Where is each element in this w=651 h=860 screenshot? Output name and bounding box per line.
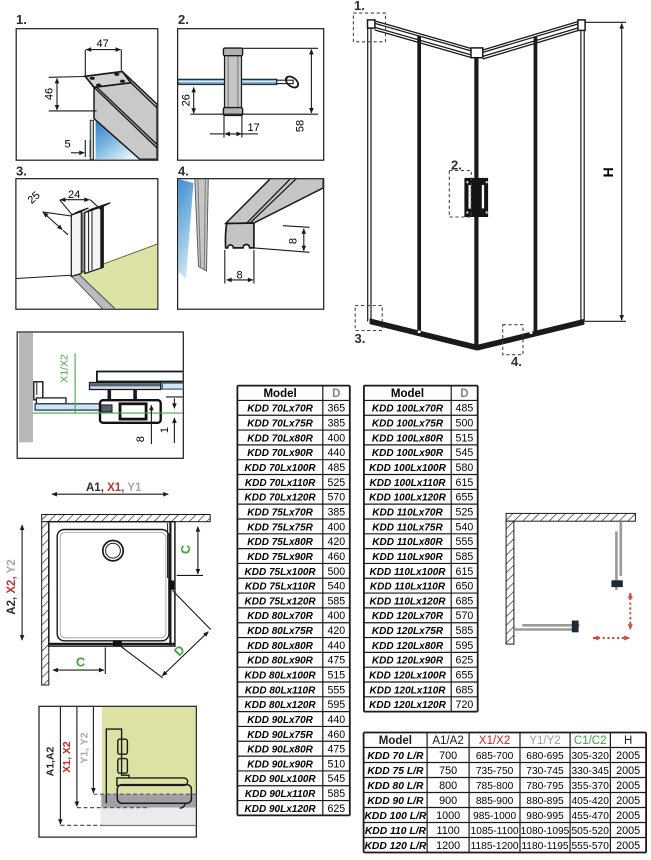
svg-text:KDD 110Lx100R: KDD 110Lx100R [370, 567, 447, 578]
svg-text:KDD 70Lx120R: KDD 70Lx120R [245, 493, 317, 504]
svg-text:570: 570 [327, 492, 345, 504]
svg-text:KDD 75Lx100R: KDD 75Lx100R [245, 567, 317, 578]
svg-text:Model: Model [379, 735, 412, 747]
svg-text:KDD 120Lx120R: KDD 120Lx120R [369, 700, 446, 711]
svg-text:KDD 75Lx120R: KDD 75Lx120R [245, 596, 317, 607]
svg-text:730-745: 730-745 [526, 766, 564, 777]
svg-text:58: 58 [295, 120, 307, 132]
svg-text:985-1000: 985-1000 [473, 811, 516, 822]
svg-text:KDD 120Lx90R: KDD 120Lx90R [372, 656, 444, 667]
svg-text:KDD 120Lx75R: KDD 120Lx75R [372, 626, 444, 637]
svg-text:X1/X2: X1/X2 [59, 354, 71, 383]
svg-text:1200: 1200 [436, 840, 460, 852]
svg-text:Model: Model [391, 388, 424, 400]
svg-text:420: 420 [327, 625, 345, 637]
svg-text:1180-1195: 1180-1195 [521, 841, 569, 852]
svg-text:C1/C2: C1/C2 [574, 735, 607, 747]
svg-text:365: 365 [327, 403, 345, 415]
svg-text:KDD 70Lx75R: KDD 70Lx75R [247, 419, 313, 430]
svg-text:KDD 80Lx75R: KDD 80Lx75R [247, 626, 313, 637]
svg-text:A1, X1, Y1: A1, X1, Y1 [86, 482, 142, 494]
svg-text:545: 545 [327, 773, 345, 785]
svg-text:545: 545 [456, 447, 474, 459]
svg-text:KDD 100Lx80R: KDD 100Lx80R [372, 433, 444, 444]
svg-text:405-420: 405-420 [572, 796, 610, 807]
svg-text:KDD 120Lx70R: KDD 120Lx70R [372, 611, 444, 622]
svg-text:KDD 70Lx110R: KDD 70Lx110R [245, 478, 316, 489]
svg-text:KDD 90Lx100R: KDD 90Lx100R [245, 774, 317, 785]
svg-text:KDD 100 L/R: KDD 100 L/R [365, 811, 427, 822]
svg-text:KDD 90Lx110R: KDD 90Lx110R [245, 789, 316, 800]
svg-text:Y1/Y2: Y1/Y2 [529, 735, 560, 747]
svg-text:C: C [76, 656, 85, 670]
svg-text:KDD 100Lx120R: KDD 100Lx120R [369, 493, 446, 504]
svg-text:385: 385 [327, 506, 345, 518]
svg-text:D: D [460, 388, 468, 400]
svg-text:615: 615 [456, 566, 474, 578]
svg-text:2.: 2. [178, 12, 189, 27]
svg-text:KDD 80 L/R: KDD 80 L/R [367, 781, 424, 792]
svg-text:685: 685 [456, 595, 474, 607]
svg-text:555-570: 555-570 [572, 841, 610, 852]
svg-text:KDD 90 L/R: KDD 90 L/R [367, 796, 424, 807]
svg-text:540: 540 [456, 521, 474, 533]
svg-text:585: 585 [327, 788, 345, 800]
svg-text:H: H [600, 167, 616, 177]
svg-text:KDD 100Lx90R: KDD 100Lx90R [372, 448, 444, 459]
svg-text:KDD 90Lx75R: KDD 90Lx75R [247, 730, 313, 741]
svg-text:KDD 90Lx70R: KDD 90Lx70R [247, 715, 313, 726]
svg-text:1: 1 [159, 427, 171, 433]
svg-text:735-750: 735-750 [476, 766, 514, 777]
svg-text:C: C [179, 545, 193, 554]
svg-text:KDD 80Lx90R: KDD 80Lx90R [247, 656, 313, 667]
svg-text:KDD 80Lx80R: KDD 80Lx80R [247, 641, 313, 652]
svg-text:655: 655 [456, 669, 474, 681]
svg-text:585: 585 [327, 595, 345, 607]
svg-text:685: 685 [456, 684, 474, 696]
svg-text:X1/X2: X1/X2 [479, 735, 510, 747]
svg-text:KDD 110Lx80R: KDD 110Lx80R [372, 537, 443, 548]
svg-text:2005: 2005 [616, 810, 640, 822]
svg-text:KDD 70Lx80R: KDD 70Lx80R [247, 433, 313, 444]
svg-text:785-800: 785-800 [476, 781, 514, 792]
svg-text:515: 515 [327, 669, 345, 681]
svg-text:505-520: 505-520 [572, 826, 610, 837]
svg-text:KDD 90Lx90R: KDD 90Lx90R [247, 759, 313, 770]
svg-text:KDD 70Lx90R: KDD 70Lx90R [247, 448, 313, 459]
svg-text:H: H [624, 735, 632, 747]
svg-text:900: 900 [439, 795, 457, 807]
svg-text:KDD 110Lx75R: KDD 110Lx75R [372, 522, 443, 533]
svg-text:Model: Model [263, 388, 296, 400]
svg-text:685-700: 685-700 [476, 751, 514, 762]
svg-text:KDD 70 L/R: KDD 70 L/R [367, 751, 424, 762]
svg-text:46: 46 [44, 88, 56, 100]
svg-text:3.: 3. [355, 331, 366, 346]
svg-text:700: 700 [439, 750, 457, 762]
svg-text:475: 475 [327, 744, 345, 756]
svg-text:KDD 120Lx80R: KDD 120Lx80R [372, 641, 444, 652]
svg-text:625: 625 [456, 655, 474, 667]
svg-text:KDD 110Lx110R: KDD 110Lx110R [370, 582, 446, 593]
svg-text:500: 500 [456, 418, 474, 430]
svg-text:440: 440 [327, 640, 345, 652]
svg-text:400: 400 [327, 610, 345, 622]
svg-text:720: 720 [456, 699, 474, 711]
svg-text:420: 420 [327, 536, 345, 548]
svg-text:KDD 70Lx70R: KDD 70Lx70R [247, 404, 313, 415]
svg-text:KDD 100Lx70R: KDD 100Lx70R [372, 404, 444, 415]
svg-text:385: 385 [327, 418, 345, 430]
svg-text:KDD 80Lx70R: KDD 80Lx70R [247, 611, 313, 622]
svg-text:1085-1100: 1085-1100 [471, 826, 519, 837]
svg-text:750: 750 [439, 765, 457, 777]
svg-text:1.: 1. [354, 0, 365, 13]
svg-text:4.: 4. [511, 354, 522, 369]
svg-text:KDD 120Lx110R: KDD 120Lx110R [370, 685, 447, 696]
svg-text:680-695: 680-695 [526, 751, 564, 762]
svg-text:A2, X2, Y2: A2, X2, Y2 [6, 559, 18, 614]
svg-text:Y1, Y2: Y1, Y2 [79, 732, 91, 763]
svg-text:KDD 75Lx75R: KDD 75Lx75R [247, 522, 313, 533]
svg-text:3.: 3. [16, 164, 27, 179]
svg-text:KDD 120Lx100R: KDD 120Lx100R [369, 670, 446, 681]
svg-text:8: 8 [288, 238, 300, 244]
svg-text:515: 515 [456, 432, 474, 444]
svg-text:440: 440 [327, 447, 345, 459]
svg-text:455-470: 455-470 [572, 811, 610, 822]
svg-text:KDD 80Lx110R: KDD 80Lx110R [245, 685, 316, 696]
svg-text:780-795: 780-795 [526, 781, 564, 792]
svg-text:A1/A2: A1/A2 [432, 735, 463, 747]
svg-text:KDD 100Lx110R: KDD 100Lx110R [370, 478, 447, 489]
svg-text:KDD 100Lx100R: KDD 100Lx100R [369, 463, 446, 474]
svg-text:KDD 90Lx120R: KDD 90Lx120R [245, 804, 317, 815]
svg-text:880-895: 880-895 [526, 796, 564, 807]
svg-text:555: 555 [327, 684, 345, 696]
svg-text:KDD 80Lx120R: KDD 80Lx120R [245, 700, 317, 711]
svg-text:1080-1095: 1080-1095 [521, 826, 570, 837]
svg-text:KDD 110Lx90R: KDD 110Lx90R [372, 552, 443, 563]
svg-text:KDD 110Lx120R: KDD 110Lx120R [370, 596, 447, 607]
svg-text:485: 485 [327, 462, 345, 474]
svg-text:525: 525 [456, 506, 474, 518]
svg-text:1.: 1. [16, 12, 27, 27]
svg-text:585: 585 [456, 625, 474, 637]
svg-text:650: 650 [456, 581, 474, 593]
svg-text:KDD 75Lx110R: KDD 75Lx110R [245, 582, 316, 593]
svg-text:980-995: 980-995 [526, 811, 564, 822]
svg-text:585: 585 [456, 551, 474, 563]
svg-text:460: 460 [327, 729, 345, 741]
svg-text:D: D [332, 388, 340, 400]
svg-text:A1,A2: A1,A2 [45, 746, 57, 776]
svg-text:KDD 110Lx70R: KDD 110Lx70R [372, 507, 443, 518]
svg-text:510: 510 [327, 758, 345, 770]
svg-text:8: 8 [135, 436, 147, 442]
svg-text:KDD 75 L/R: KDD 75 L/R [367, 766, 424, 777]
svg-text:555: 555 [456, 536, 474, 548]
svg-text:475: 475 [327, 655, 345, 667]
svg-text:KDD 75Lx80R: KDD 75Lx80R [247, 537, 313, 548]
svg-text:800: 800 [439, 780, 457, 792]
svg-text:330-345: 330-345 [572, 766, 610, 777]
svg-text:595: 595 [456, 640, 474, 652]
svg-text:400: 400 [327, 432, 345, 444]
svg-text:2005: 2005 [616, 840, 640, 852]
svg-text:4.: 4. [178, 164, 189, 179]
svg-text:KDD 75Lx70R: KDD 75Lx70R [247, 507, 313, 518]
svg-text:KDD 120 L/R: KDD 120 L/R [365, 841, 427, 852]
svg-text:KDD 90Lx80R: KDD 90Lx80R [247, 745, 313, 756]
svg-text:KDD 110 L/R: KDD 110 L/R [365, 826, 427, 837]
svg-text:1100: 1100 [436, 825, 459, 837]
svg-text:2005: 2005 [616, 780, 640, 792]
svg-text:885-900: 885-900 [476, 796, 514, 807]
svg-text:2005: 2005 [616, 765, 640, 777]
svg-text:KDD 70Lx100R: KDD 70Lx100R [245, 463, 317, 474]
svg-text:1000: 1000 [436, 810, 460, 822]
svg-text:500: 500 [327, 566, 345, 578]
svg-text:615: 615 [456, 477, 474, 489]
svg-text:KDD 100Lx75R: KDD 100Lx75R [372, 419, 444, 430]
svg-text:KDD 80Lx100R: KDD 80Lx100R [245, 670, 317, 681]
svg-text:5: 5 [65, 139, 71, 151]
svg-text:400: 400 [327, 521, 345, 533]
svg-text:2005: 2005 [616, 795, 640, 807]
svg-text:2005: 2005 [616, 750, 640, 762]
svg-text:525: 525 [327, 477, 345, 489]
svg-text:26: 26 [181, 94, 193, 106]
svg-text:305-320: 305-320 [572, 751, 610, 762]
svg-text:570: 570 [456, 610, 474, 622]
svg-text:580: 580 [456, 462, 474, 474]
svg-text:1185-1200: 1185-1200 [471, 841, 519, 852]
svg-text:540: 540 [327, 581, 345, 593]
svg-text:460: 460 [327, 551, 345, 563]
svg-text:595: 595 [327, 699, 345, 711]
svg-text:625: 625 [327, 803, 345, 815]
svg-text:X1, X2: X1, X2 [61, 741, 73, 773]
svg-text:440: 440 [327, 714, 345, 726]
svg-text:2005: 2005 [616, 825, 640, 837]
svg-text:355-370: 355-370 [572, 781, 610, 792]
svg-text:KDD 75Lx90R: KDD 75Lx90R [247, 552, 313, 563]
svg-text:655: 655 [456, 492, 474, 504]
svg-text:17: 17 [248, 122, 260, 134]
svg-text:485: 485 [456, 403, 474, 415]
svg-text:47: 47 [97, 38, 109, 50]
